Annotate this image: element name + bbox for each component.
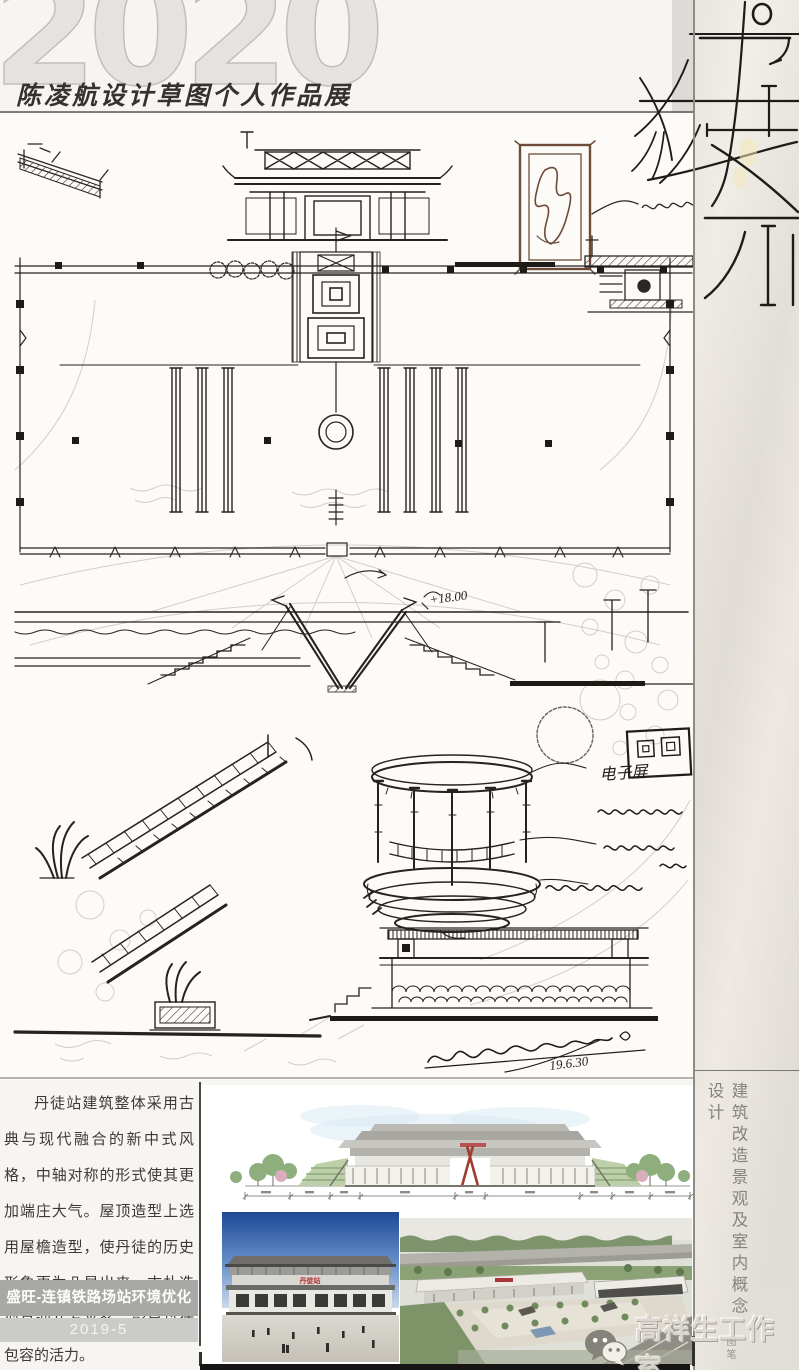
project-date-banner: 2019-5 [0,1318,198,1342]
note-screen-text: 电子屏 [599,763,650,784]
portfolio-poster-page: 2020 2020 陈凌航设计草图个人作品展 [0,0,799,1370]
calligraphy-artwork [600,0,799,340]
studio-name: 高祥生工作室 [635,1308,799,1370]
studio-branding: 高祥生工作室 [582,1308,799,1370]
project-name-banner: 盛旺-连镇铁路场站环境优化 [0,1280,198,1316]
header-rule [0,111,693,113]
hand-sketch-drawing: 电子屏 +18.00 [0,113,695,1080]
photo-front-view: 丹徒站 [222,1212,399,1362]
station-sign-text: 丹徒站 [299,1276,321,1285]
exhibition-title: 陈凌航设计草图个人作品展 [16,76,352,112]
right-column-rule [695,1070,799,1071]
wechat-icon [582,1326,629,1368]
elevation-rendering [200,1085,695,1210]
right-vertical-caption: 建筑改造景观及室内概念设计 [702,1082,750,1332]
